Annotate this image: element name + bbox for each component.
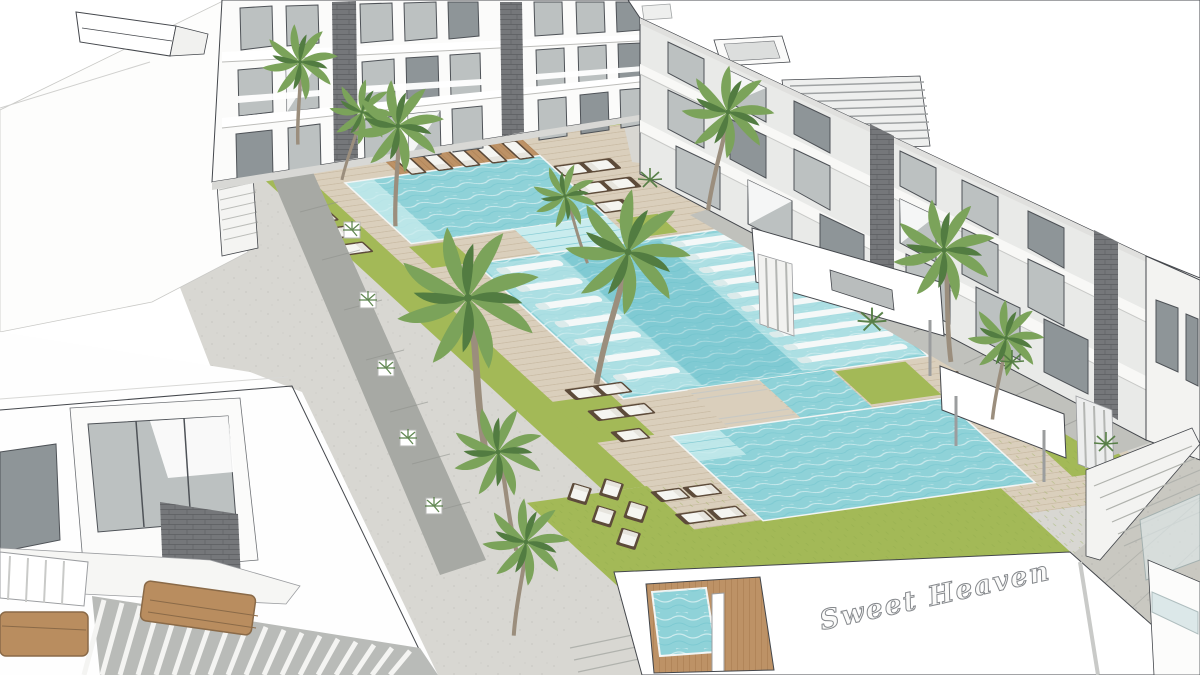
roof-vent-small [642, 4, 672, 20]
architectural-rendering: Sweet Heaven [0, 0, 1200, 675]
picnic-table-2 [0, 612, 88, 656]
canopy-cutout-interior [640, 572, 780, 675]
clubhouse-window-left [0, 444, 60, 552]
left-awning [0, 552, 88, 606]
scene-canvas: Sweet Heaven [0, 0, 1200, 675]
